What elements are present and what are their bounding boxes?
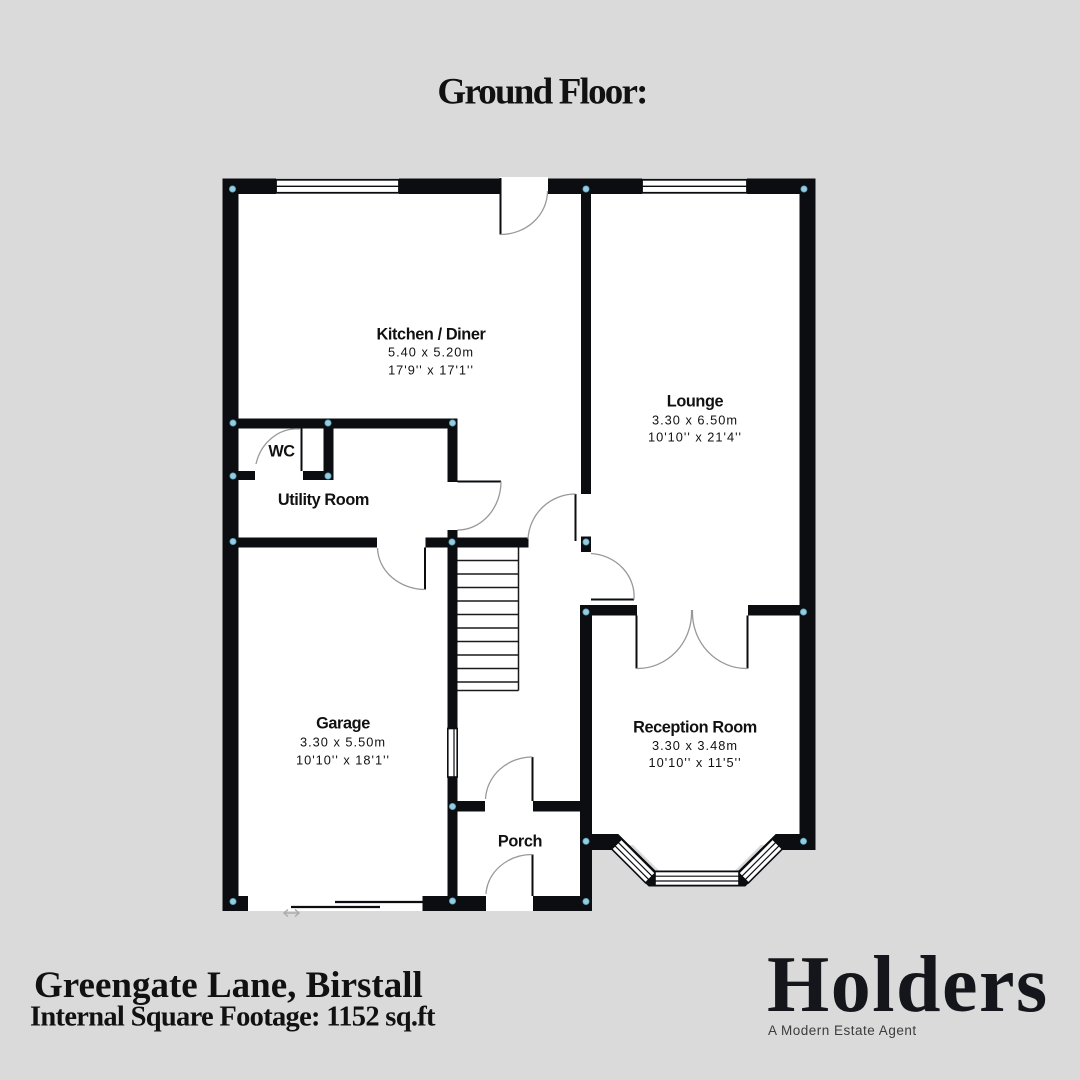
svg-text:3.30 x 5.50m: 3.30 x 5.50m bbox=[300, 735, 386, 750]
svg-text:WC: WC bbox=[268, 443, 295, 461]
svg-text:Utility Room: Utility Room bbox=[278, 491, 369, 509]
svg-text:Lounge: Lounge bbox=[667, 393, 724, 411]
svg-text:Holders: Holders bbox=[767, 941, 1049, 1029]
svg-text:10'10'' x 18'1'': 10'10'' x 18'1'' bbox=[296, 753, 390, 768]
svg-text:Kitchen / Diner: Kitchen / Diner bbox=[377, 326, 487, 344]
svg-text:Garage: Garage bbox=[316, 715, 370, 733]
svg-text:A Modern Estate Agent: A Modern Estate Agent bbox=[768, 1023, 917, 1038]
svg-text:Porch: Porch bbox=[498, 832, 542, 850]
svg-text:17'9'' x 17'1'': 17'9'' x 17'1'' bbox=[388, 363, 474, 378]
svg-text:3.30 x 3.48m: 3.30 x 3.48m bbox=[652, 738, 738, 753]
svg-text:3.30 x 6.50m: 3.30 x 6.50m bbox=[652, 413, 738, 428]
svg-text:5.40 x 5.20m: 5.40 x 5.20m bbox=[388, 345, 474, 360]
svg-text:Reception Room: Reception Room bbox=[633, 719, 757, 737]
svg-text:10'10'' x 21'4'': 10'10'' x 21'4'' bbox=[648, 430, 742, 445]
svg-text:Ground Floor:: Ground Floor: bbox=[437, 72, 646, 113]
svg-text:10'10'' x 11'5'': 10'10'' x 11'5'' bbox=[648, 755, 741, 770]
svg-text:Greengate Lane, Birstall: Greengate Lane, Birstall bbox=[34, 965, 423, 1006]
svg-text:Internal Square Footage: 1152: Internal Square Footage: 1152 sq.ft bbox=[30, 1002, 436, 1033]
